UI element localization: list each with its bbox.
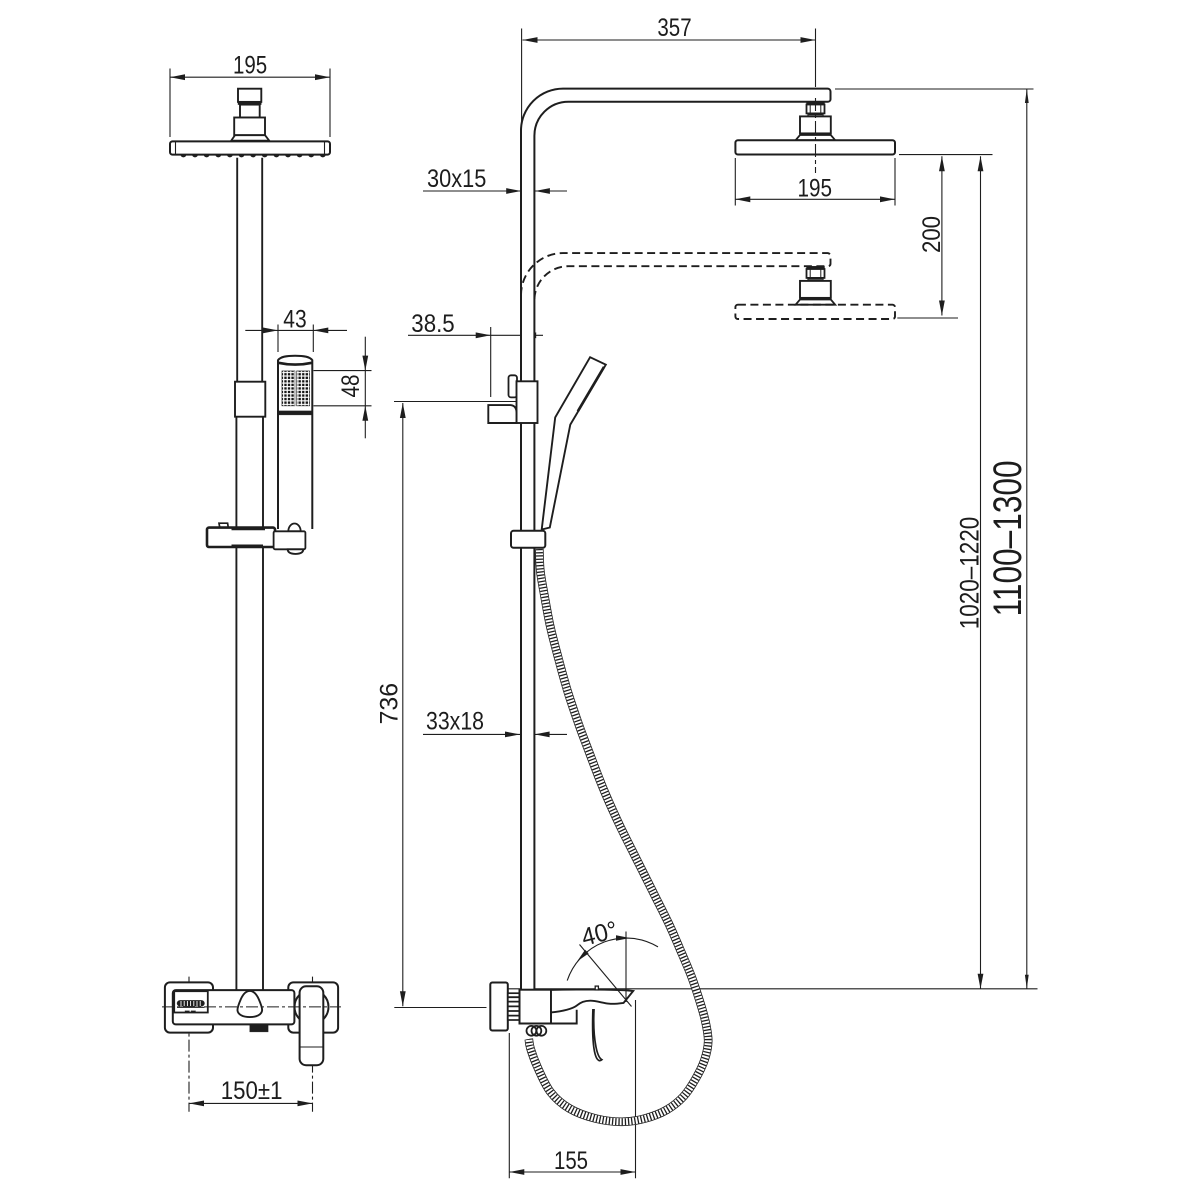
svg-text:1100–1300: 1100–1300 xyxy=(986,460,1030,616)
svg-text:195: 195 xyxy=(798,174,833,202)
svg-text:736: 736 xyxy=(376,683,404,724)
svg-text:43: 43 xyxy=(283,305,306,333)
svg-text:48: 48 xyxy=(337,375,365,398)
svg-text:357: 357 xyxy=(657,14,691,42)
svg-text:30x15: 30x15 xyxy=(427,165,486,193)
svg-text:150±1: 150±1 xyxy=(221,1077,283,1105)
svg-text:38.5: 38.5 xyxy=(411,310,454,338)
svg-text:155: 155 xyxy=(554,1147,588,1175)
svg-text:1020–1220: 1020–1220 xyxy=(955,517,985,630)
svg-text:200: 200 xyxy=(918,216,946,253)
svg-text:33x18: 33x18 xyxy=(426,708,484,736)
svg-text:195: 195 xyxy=(233,51,267,79)
